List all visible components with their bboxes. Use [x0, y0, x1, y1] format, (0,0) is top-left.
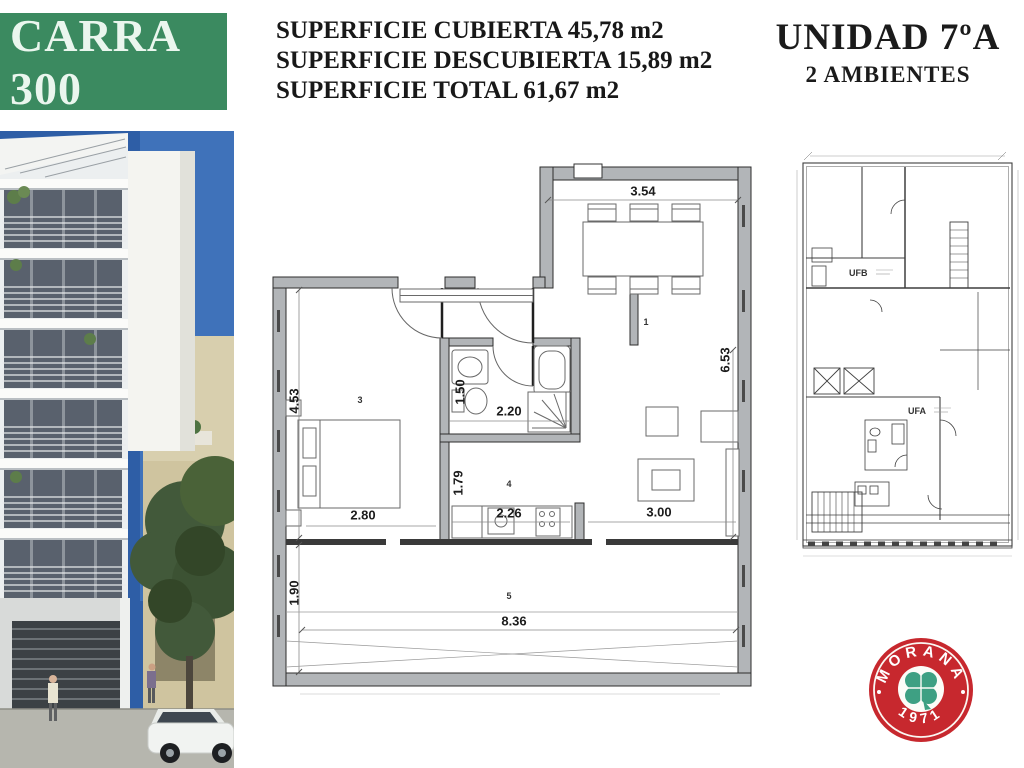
project-banner: CARRA 300 [0, 13, 227, 110]
dim-left-lower: 1.90 [287, 580, 302, 605]
dim-kitchen: 2.26 [496, 506, 521, 521]
surface-total-line: SUPERFICIE TOTAL 61,67 m2 [276, 76, 776, 106]
unit-subtitle: 2 AMBIENTES [760, 62, 1016, 88]
surface-summary: SUPERFICIE CUBIERTA 45,78 m2 SUPERFICIE … [276, 16, 776, 106]
dim-balcony: 8.36 [501, 614, 526, 629]
key-plan-unit-a-label: UFA [908, 406, 927, 416]
room-label-balcony: 5 [506, 591, 511, 601]
dim-hall-height: 1.79 [451, 470, 466, 495]
room-label-kitchen: 4 [506, 479, 511, 489]
morana-logo: MORANA 1971 [865, 634, 977, 746]
dim-right: 6.53 [718, 347, 733, 372]
dim-left-upper: 4.53 [287, 388, 302, 413]
surface-uncovered-line: SUPERFICIE DESCUBIERTA 15,89 m2 [276, 46, 776, 76]
dim-bath-width: 2.20 [496, 404, 521, 419]
dim-bedroom: 2.80 [350, 508, 375, 523]
key-plan-drawing: UFB UFA [795, 148, 1023, 560]
surface-covered-line: SUPERFICIE CUBIERTA 45,78 m2 [276, 16, 776, 46]
dim-top: 3.54 [630, 184, 655, 199]
building-render-photo [0, 131, 234, 768]
room-label-bedroom: 3 [357, 395, 362, 405]
project-name: CARRA 300 [10, 9, 227, 115]
flyer: CARRA 300 SUPERFICIE CUBIERTA 45,78 m2 S… [0, 0, 1024, 768]
key-plan-unit-b-label: UFB [849, 268, 868, 278]
room-label-living: 1 [643, 317, 648, 327]
unit-title: UNIDAD 7ºA [760, 16, 1016, 59]
dim-bath-height: 1.50 [453, 379, 468, 404]
unit-block: UNIDAD 7ºA 2 AMBIENTES [760, 16, 1016, 88]
dim-living: 3.00 [646, 505, 671, 520]
